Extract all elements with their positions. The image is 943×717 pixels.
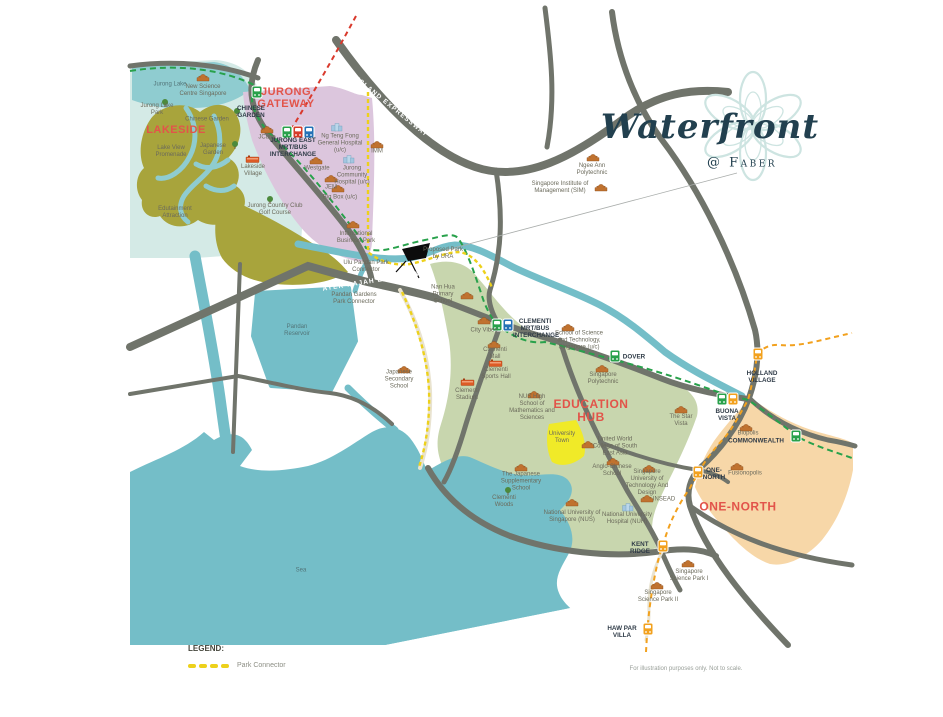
science-park-2-icon <box>651 582 663 589</box>
disclaimer-text: For illustration purposes only. Not to s… <box>630 666 743 672</box>
station-label-chinese-garden: CHINESE GARDEN <box>227 105 275 119</box>
label-clementi-sports-hall: Clementi Sports Hall <box>477 367 515 381</box>
region-label-education-hub: EDUCATION HUB <box>546 398 636 424</box>
region-label-lakeside: LAKESIDE <box>146 124 206 136</box>
station-icon-holland-village <box>753 348 763 360</box>
label-science-park-1: Singapore Science Park I <box>668 569 710 583</box>
label-ng-teng-fong: Ng Teng Fong General Hospital (u/c) <box>314 133 366 154</box>
region-label-one-north: ONE-NORTH <box>699 500 776 513</box>
label-university-town: University Town <box>545 431 579 445</box>
label-jurong-community-hospital: Jurong Community Hospital (u/c) <box>329 165 375 186</box>
label-jurong-lake-park: Jurong Lake Park <box>138 103 176 117</box>
label-big-box: Big Box (u/c) <box>320 194 360 201</box>
label-sim: Singapore Institute of Management (SIM) <box>520 181 600 195</box>
ngee-ann-polytechnic-icon <box>587 154 599 161</box>
label-sutd: Singapore University of Technology And D… <box>620 469 674 497</box>
station-label-dover: DOVER <box>623 353 645 360</box>
logo-subtitle: @ Faber <box>707 156 777 171</box>
label-chinese-garden-park: Chinese Garden <box>185 116 229 123</box>
label-japanese-garden: Japanese Garden <box>191 143 235 157</box>
label-japanese-supplementary: The Japanese Supplementary School <box>498 471 544 492</box>
label-pandan-reservoir: Pandan Reservoir <box>276 324 318 338</box>
label-ngee-ann-polytechnic: Ngee Ann Polytechnic <box>569 163 615 177</box>
label-clementi-mall: Clementi Mall <box>477 347 513 361</box>
legend-title: LEGEND: <box>188 644 224 653</box>
station-icon-kent-ridge <box>658 540 668 552</box>
logo-title: Waterfront <box>601 107 819 147</box>
station-icon-haw-par-villa <box>643 623 653 635</box>
label-japanese-secondary: Japanese Secondary School <box>378 369 420 390</box>
station-icon-buona-vista-ccl <box>728 393 738 405</box>
label-nan-hua: Nan Hua Primary School <box>424 284 462 305</box>
station-label-commonwealth: COMMONWEALTH <box>728 437 784 444</box>
label-nus: National University of Singapore (NUS) <box>541 510 603 524</box>
label-pandan-gardens-pc: Pandan Gardens Park Connector <box>329 292 379 306</box>
station-icon-dover <box>610 350 620 362</box>
label-nus-high: NUS High School of Mathematics and Scien… <box>509 394 555 422</box>
label-lakeside-village: Lakeside Village <box>232 164 274 178</box>
label-insead: INSEAD <box>646 496 682 503</box>
science-park-1-icon <box>682 560 694 567</box>
label-clementi-stadium: Clementi Stadium <box>448 388 486 402</box>
station-label-haw-par-villa: HAW PAR VILLA <box>605 625 639 639</box>
label-nuh: National University Hospital (NUH) <box>599 512 655 526</box>
label-uwc: United World College of South East Asia <box>589 436 641 457</box>
label-sst: School of Science and Technology, Singap… <box>551 330 607 351</box>
label-star-vista: The Star Vista <box>664 414 698 428</box>
label-sea: Sea <box>286 567 316 574</box>
label-science-park-2: Singapore Science Park II <box>637 590 679 604</box>
label-proposed-park: Proposed Park by URA <box>422 247 464 261</box>
station-icon-commonwealth <box>791 430 801 442</box>
map-canvas: LAKESIDE JURONG GATEWAY EDUCATION HUB ON… <box>0 0 943 717</box>
label-fusionopolis: Fusionopolis <box>723 470 767 477</box>
label-singapore-polytechnic: Singapore Polytechnic <box>581 372 625 386</box>
legend-park-connector-label: Park Connector <box>237 662 286 669</box>
label-ulu-pandan-pc: Ulu Pandan Park Connector <box>341 260 391 274</box>
label-edutainment-attraction: Edutainment Attraction <box>149 206 201 220</box>
station-label-kent-ridge: KENT RIDGE <box>626 541 654 555</box>
station-label-holland-village: HOLLAND VILLAGE <box>741 370 783 384</box>
label-jurong-country-club: Jurong Country Club Golf Course <box>244 203 306 217</box>
label-lake-view-promenade: Lake View Promenade <box>150 145 192 159</box>
label-imm: IMM <box>365 148 389 155</box>
station-icon-buona-vista-ew <box>717 393 727 405</box>
label-new-science-centre: New Science Centre Singapore <box>177 84 229 98</box>
label-clementi-woods: Clementi Woods <box>486 495 522 509</box>
label-jem: JEM <box>319 184 343 191</box>
station-label-buona-vista: BUONA VISTA <box>712 408 742 422</box>
label-city-vibes: City Vibes <box>470 327 498 334</box>
label-international-business-park: International Business Park <box>333 231 379 245</box>
bus-icon-clementi <box>503 319 513 331</box>
